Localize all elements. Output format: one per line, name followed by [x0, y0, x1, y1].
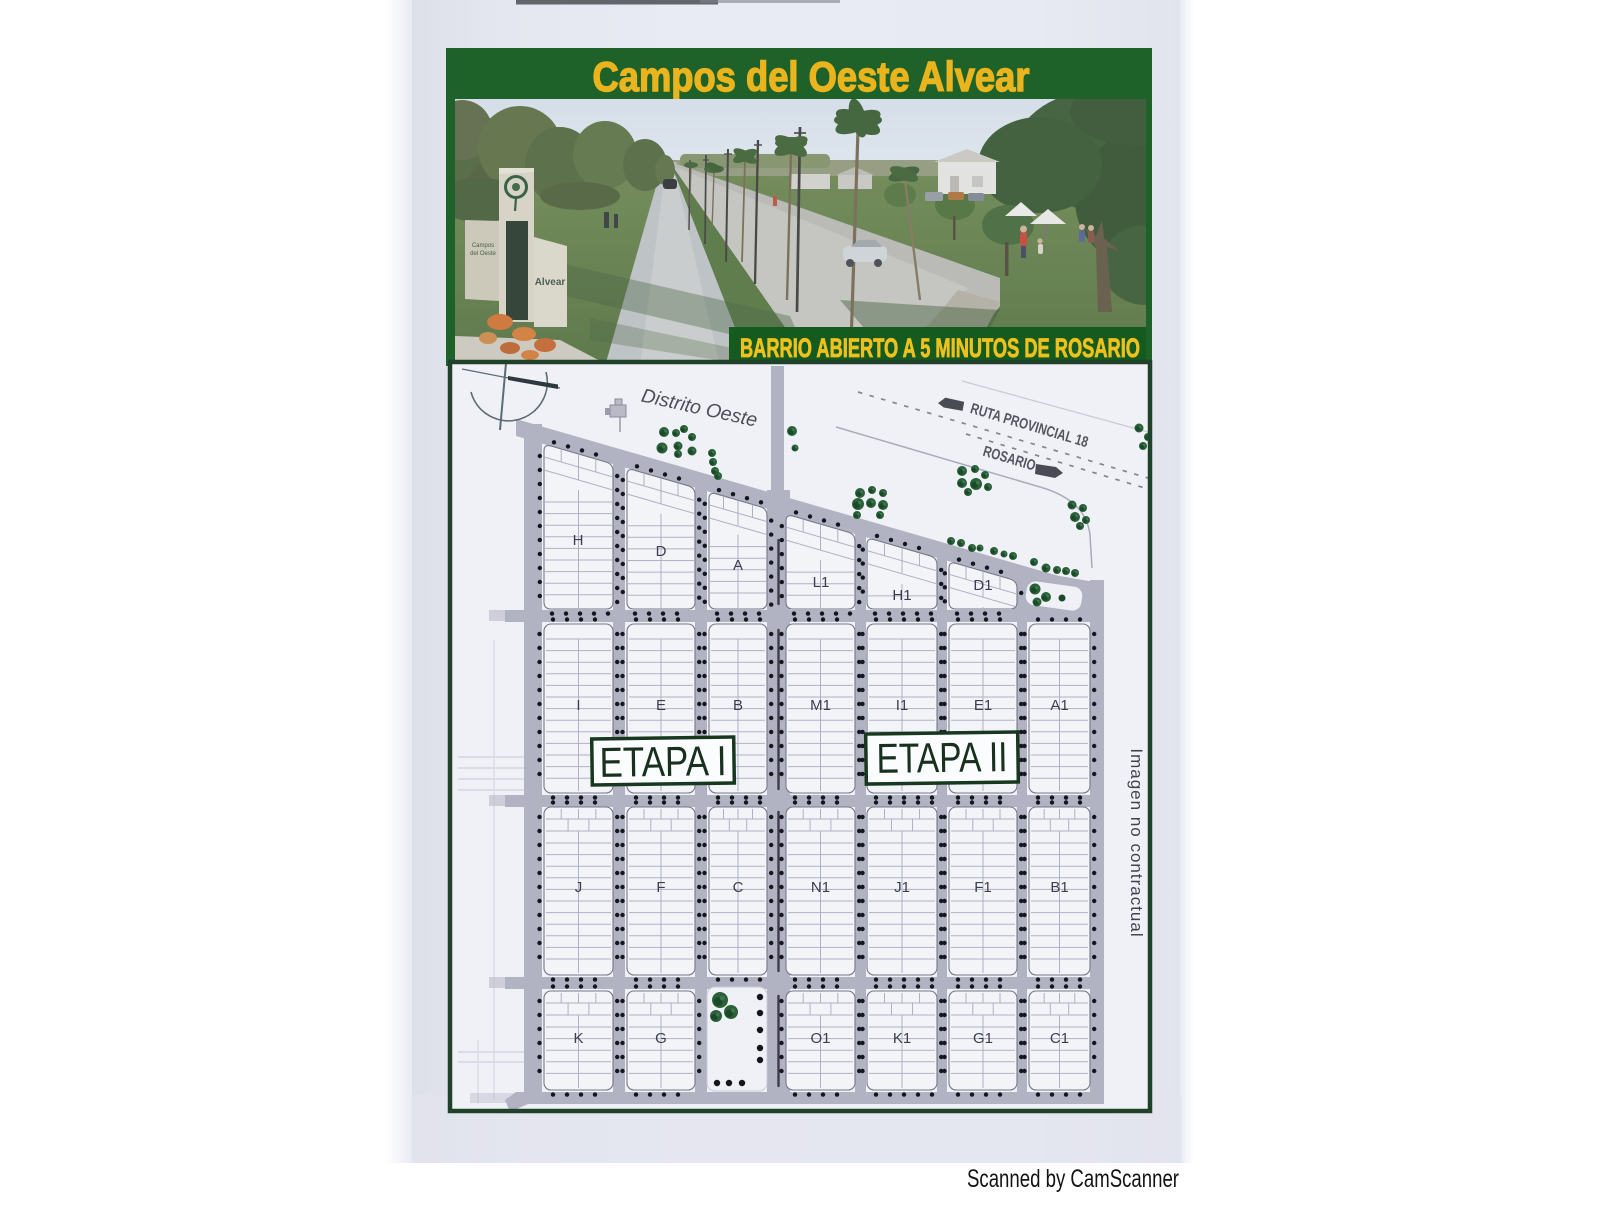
svg-text:C: C: [733, 879, 744, 896]
svg-text:K1: K1: [893, 1030, 911, 1047]
svg-text:G: G: [655, 1030, 667, 1047]
svg-text:J: J: [575, 879, 583, 896]
svg-text:H1: H1: [892, 587, 911, 604]
svg-text:ETAPA II: ETAPA II: [876, 733, 1008, 782]
svg-text:B: B: [733, 697, 743, 714]
svg-text:E: E: [656, 697, 666, 714]
svg-text:C1: C1: [1050, 1030, 1069, 1047]
svg-text:M1: M1: [810, 697, 831, 714]
svg-text:E1: E1: [974, 697, 992, 714]
svg-text:B1: B1: [1050, 879, 1068, 896]
svg-text:ETAPA I: ETAPA I: [599, 737, 727, 786]
svg-text:H: H: [573, 532, 584, 549]
svg-text:Campos del Oeste Alvear: Campos del Oeste Alvear: [593, 53, 1030, 100]
svg-text:I1: I1: [896, 697, 909, 714]
svg-text:F1: F1: [974, 879, 992, 896]
svg-text:N1: N1: [811, 879, 830, 896]
svg-text:Scanned by CamScanner: Scanned by CamScanner: [967, 1165, 1179, 1193]
svg-text:L1: L1: [813, 574, 830, 591]
svg-text:BARRIO ABIERTO A 5 MINUTOS DE: BARRIO ABIERTO A 5 MINUTOS DE ROSARIO: [740, 333, 1140, 363]
svg-text:I: I: [576, 697, 580, 714]
svg-text:G1: G1: [973, 1030, 993, 1047]
svg-text:Imagen no contractual: Imagen no contractual: [1127, 748, 1146, 937]
svg-text:J1: J1: [894, 879, 910, 896]
svg-text:D1: D1: [973, 577, 992, 594]
svg-text:O1: O1: [810, 1030, 830, 1047]
svg-text:A: A: [733, 557, 743, 574]
svg-text:F: F: [656, 879, 665, 896]
svg-text:K: K: [573, 1030, 583, 1047]
svg-text:A1: A1: [1050, 697, 1068, 714]
svg-text:D: D: [656, 543, 667, 560]
